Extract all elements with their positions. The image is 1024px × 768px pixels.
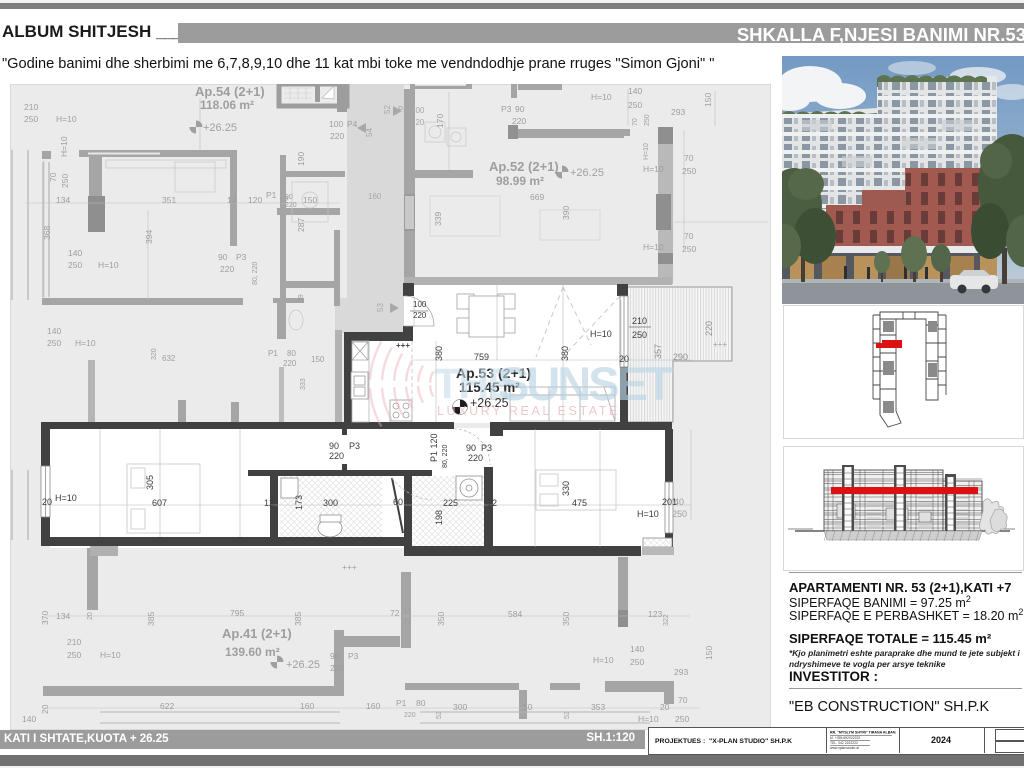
- svg-text:52: 52: [383, 105, 392, 114]
- svg-text:52: 52: [436, 711, 443, 719]
- svg-text:140: 140: [22, 714, 36, 724]
- svg-text:100: 100: [329, 119, 343, 129]
- svg-text:250: 250: [682, 166, 696, 176]
- svg-text:H=10: H=10: [98, 260, 119, 270]
- svg-text:59: 59: [298, 294, 305, 302]
- svg-text:72: 72: [390, 608, 400, 618]
- svg-text:20: 20: [42, 497, 52, 507]
- svg-text:52: 52: [564, 711, 571, 719]
- svg-text:54: 54: [365, 128, 374, 137]
- svg-text:90: 90: [466, 443, 476, 453]
- svg-text:795: 795: [230, 608, 244, 618]
- svg-text:70: 70: [632, 118, 639, 126]
- svg-text:225: 225: [443, 498, 458, 508]
- svg-text:250: 250: [47, 338, 61, 348]
- svg-text:190: 190: [296, 152, 306, 166]
- svg-text:H=10: H=10: [638, 714, 659, 724]
- svg-text:P1 120: P1 120: [429, 433, 439, 462]
- svg-text:Elementi ark.Vertikal: Elementi ark.Vertikal: [10, 496, 11, 565]
- svg-text:584: 584: [508, 609, 522, 619]
- svg-text:250: 250: [67, 650, 81, 660]
- svg-text:220: 220: [220, 264, 234, 274]
- svg-text:322: 322: [663, 614, 670, 626]
- svg-text:100: 100: [411, 106, 425, 115]
- svg-text:173: 173: [294, 495, 304, 510]
- svg-text:Elementi ark.Vertikal: Elementi ark.Vertikal: [10, 146, 11, 215]
- svg-text:385: 385: [293, 612, 303, 626]
- svg-text:380: 380: [434, 346, 444, 361]
- svg-text:H=10: H=10: [75, 338, 96, 348]
- svg-text:H=10: H=10: [643, 143, 650, 160]
- svg-text:290: 290: [673, 352, 688, 362]
- svg-text:P1: P1: [268, 349, 278, 358]
- svg-text:LUXURY REAL ESTATE: LUXURY REAL ESTATE: [437, 404, 620, 418]
- svg-text:250: 250: [24, 114, 38, 124]
- svg-text:293: 293: [674, 667, 688, 677]
- svg-text:250: 250: [628, 100, 642, 110]
- svg-text:80: 80: [285, 194, 293, 201]
- svg-text:P3: P3: [348, 651, 359, 661]
- svg-text:+26.25: +26.25: [286, 659, 320, 671]
- svg-text:250: 250: [68, 260, 82, 270]
- svg-text:333: 333: [300, 378, 307, 390]
- svg-text:250: 250: [682, 244, 696, 254]
- svg-text:80: 80: [287, 349, 296, 358]
- svg-text:140: 140: [630, 644, 644, 654]
- svg-text:475: 475: [572, 498, 587, 508]
- svg-text:293: 293: [671, 107, 685, 117]
- svg-text:70: 70: [684, 231, 694, 241]
- svg-text:SUNSET: SUNSET: [498, 357, 674, 410]
- svg-text:160: 160: [300, 701, 314, 711]
- svg-text:50: 50: [523, 702, 533, 712]
- svg-text:60: 60: [393, 497, 403, 507]
- svg-text:250: 250: [644, 114, 651, 126]
- svg-text:70: 70: [678, 695, 688, 705]
- svg-text:H=10: H=10: [593, 655, 614, 665]
- svg-text:12: 12: [487, 498, 497, 508]
- svg-text:+26.25: +26.25: [570, 167, 604, 179]
- svg-text:80, 220: 80, 220: [442, 445, 449, 468]
- svg-text:220: 220: [411, 118, 425, 127]
- svg-text:20: 20: [40, 704, 50, 714]
- svg-text:607: 607: [152, 498, 167, 508]
- svg-text:390: 390: [561, 206, 571, 220]
- svg-text:220: 220: [285, 202, 297, 209]
- svg-text:370: 370: [40, 611, 50, 625]
- svg-text:123: 123: [648, 609, 662, 619]
- svg-text:150: 150: [303, 195, 317, 205]
- svg-text:H=10: H=10: [643, 242, 664, 252]
- svg-text:P3: P3: [349, 441, 360, 451]
- svg-text:P1: P1: [266, 190, 277, 200]
- svg-text:12: 12: [264, 498, 274, 508]
- svg-text:+++: +++: [342, 562, 357, 572]
- svg-text:150: 150: [704, 646, 714, 660]
- svg-text:300: 300: [453, 702, 467, 712]
- svg-text:H=10: H=10: [55, 493, 77, 503]
- svg-text:H=10: H=10: [643, 164, 664, 174]
- svg-text:+++: +++: [396, 341, 410, 350]
- svg-text:160: 160: [368, 192, 382, 201]
- svg-text:+++: +++: [713, 340, 727, 349]
- svg-text:250: 250: [632, 330, 647, 340]
- svg-text:220: 220: [329, 451, 344, 461]
- svg-text:250: 250: [630, 657, 644, 667]
- svg-text:622: 622: [160, 701, 174, 711]
- svg-text:160: 160: [366, 701, 380, 711]
- svg-text:210: 210: [632, 316, 647, 326]
- svg-text:P4: P4: [347, 119, 358, 129]
- svg-text:220: 220: [283, 359, 297, 368]
- svg-text:120: 120: [248, 195, 262, 205]
- svg-text:350: 350: [561, 612, 571, 626]
- svg-text:40: 40: [674, 497, 684, 507]
- svg-text:394: 394: [144, 230, 154, 244]
- svg-text:140: 140: [47, 326, 61, 336]
- svg-text:70: 70: [684, 153, 694, 163]
- svg-text:385: 385: [146, 612, 156, 626]
- svg-text:210: 210: [67, 637, 81, 647]
- svg-text:70: 70: [48, 172, 58, 182]
- svg-text:220: 220: [512, 116, 526, 126]
- svg-text:Ap.52 (2+1): Ap.52 (2+1): [489, 159, 559, 174]
- svg-text:118.06 m²: 118.06 m²: [200, 98, 254, 112]
- svg-text:20: 20: [87, 612, 94, 620]
- svg-text:250: 250: [675, 714, 689, 724]
- svg-text:P4: P4: [398, 105, 408, 114]
- svg-text:TEL. 042 2222222: TEL. 042 2222222: [830, 741, 858, 745]
- svg-text:H=10: H=10: [100, 650, 121, 660]
- svg-text:669: 669: [530, 192, 544, 202]
- svg-text:RR. "MYSLYM SHYRI" TIRANA ALBA: RR. "MYSLYM SHYRI" TIRANA ALBAN.: [830, 731, 896, 735]
- svg-text:368: 368: [42, 226, 52, 240]
- svg-text:220: 220: [468, 453, 483, 463]
- svg-text:H=10: H=10: [59, 136, 69, 157]
- svg-text:632: 632: [162, 354, 176, 363]
- svg-text:134: 134: [56, 611, 70, 621]
- svg-text:Ap.54 (2+1): Ap.54 (2+1): [195, 84, 265, 99]
- svg-text:250: 250: [672, 509, 687, 519]
- svg-text:351: 351: [162, 195, 176, 205]
- svg-text:330: 330: [561, 481, 571, 496]
- svg-text:350: 350: [436, 612, 446, 626]
- svg-text:H=10: H=10: [56, 114, 77, 124]
- svg-text:90: 90: [218, 252, 228, 262]
- svg-text:220: 220: [330, 663, 344, 673]
- svg-text:305: 305: [145, 475, 155, 490]
- svg-text:353: 353: [591, 702, 605, 712]
- svg-text:134: 134: [56, 195, 70, 205]
- svg-text:H=10: H=10: [590, 329, 612, 339]
- svg-text:100: 100: [413, 300, 427, 309]
- svg-text:220: 220: [330, 131, 344, 141]
- svg-text:220: 220: [704, 321, 714, 336]
- svg-text:170: 170: [435, 114, 445, 128]
- svg-text:210: 210: [24, 102, 38, 112]
- svg-text:Ap.41 (2+1): Ap.41 (2+1): [222, 626, 292, 641]
- svg-text:198: 198: [434, 510, 444, 525]
- svg-text:H=10: H=10: [591, 92, 612, 102]
- svg-text:150: 150: [311, 355, 325, 364]
- svg-text:20: 20: [660, 702, 670, 712]
- svg-text:139.60 m²: 139.60 m²: [225, 645, 280, 659]
- svg-text:80: 80: [416, 698, 426, 708]
- svg-text:150: 150: [703, 93, 713, 107]
- svg-text:P3: P3: [481, 443, 492, 453]
- svg-text:300: 300: [323, 498, 338, 508]
- svg-text:90: 90: [330, 651, 340, 661]
- svg-text:220: 220: [413, 311, 427, 320]
- svg-text:M. +355 692022222: M. +355 692022222: [830, 736, 860, 740]
- svg-text:140: 140: [628, 86, 642, 96]
- svg-text:320: 320: [151, 348, 158, 360]
- svg-text:53: 53: [376, 303, 385, 312]
- svg-text:140: 140: [68, 248, 82, 258]
- svg-text:90: 90: [329, 441, 339, 451]
- svg-text:90: 90: [515, 104, 525, 114]
- svg-text:339: 339: [433, 212, 443, 226]
- svg-text:H=10: H=10: [637, 509, 659, 519]
- svg-text:www.xplanstudio.al: www.xplanstudio.al: [830, 746, 859, 750]
- svg-text:220: 220: [404, 712, 416, 719]
- svg-text:P3: P3: [501, 104, 512, 114]
- svg-text:+26.25: +26.25: [203, 122, 237, 134]
- svg-text:12: 12: [227, 195, 237, 205]
- svg-text:P3: P3: [236, 252, 247, 262]
- svg-text:P1: P1: [396, 698, 407, 708]
- svg-text:80, 220: 80, 220: [252, 262, 259, 285]
- svg-text:250: 250: [60, 174, 70, 188]
- svg-text:287: 287: [296, 218, 306, 232]
- svg-text:98.99 m²: 98.99 m²: [496, 174, 544, 188]
